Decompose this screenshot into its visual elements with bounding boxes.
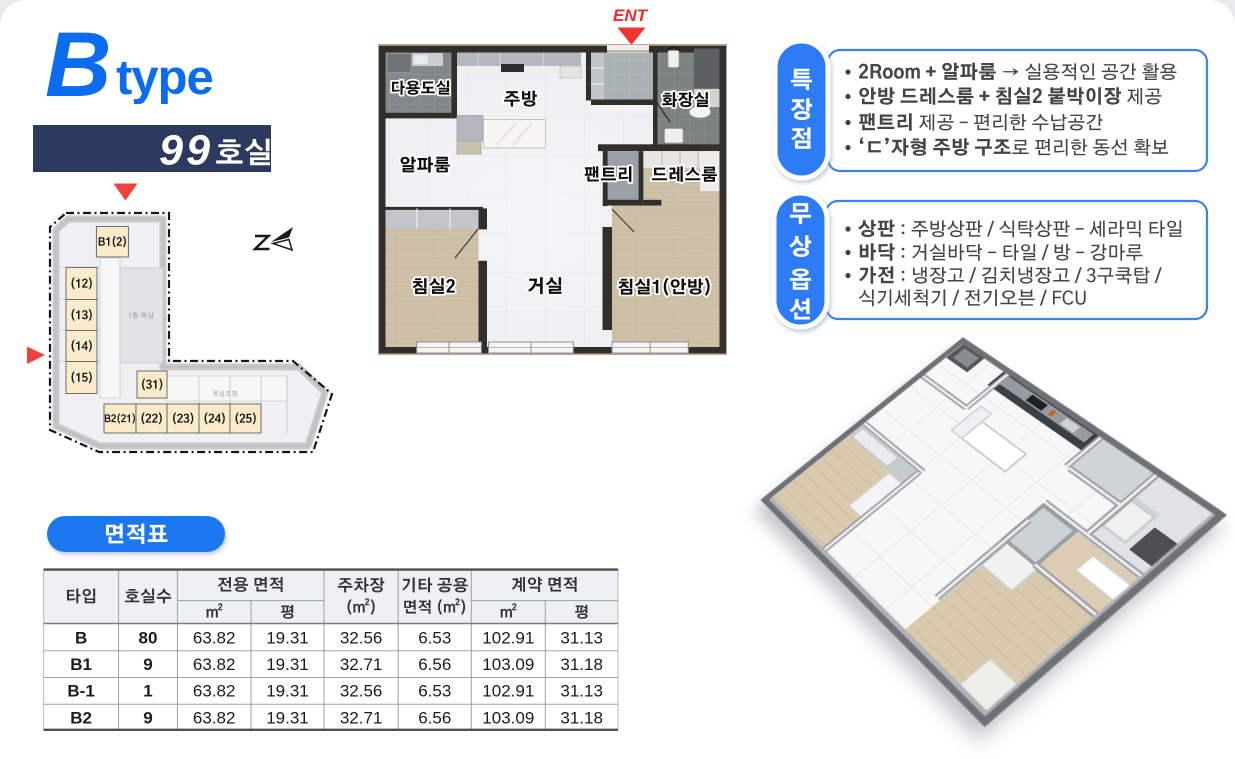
svg-text:32.56: 32.56 (340, 682, 383, 701)
svg-text:31.18: 31.18 (560, 708, 603, 727)
svg-text:32.56: 32.56 (340, 628, 383, 647)
svg-text:type: type (116, 51, 213, 105)
svg-text:19.31: 19.31 (266, 708, 309, 727)
svg-text:31.13: 31.13 (560, 682, 603, 701)
svg-text:102.91: 102.91 (482, 628, 534, 647)
svg-text:31.13: 31.13 (560, 628, 603, 647)
svg-text:102.91: 102.91 (482, 682, 534, 701)
svg-text:6.53: 6.53 (418, 682, 451, 701)
svg-text:19.31: 19.31 (266, 682, 309, 701)
svg-text:1: 1 (143, 682, 152, 701)
svg-text:31.18: 31.18 (560, 655, 603, 674)
svg-text:B: B (75, 628, 87, 647)
svg-text:6.56: 6.56 (418, 708, 451, 727)
svg-text:32.71: 32.71 (340, 655, 383, 674)
svg-text:103.09: 103.09 (482, 655, 534, 674)
svg-text:19.31: 19.31 (266, 655, 309, 674)
svg-text:9: 9 (143, 708, 152, 727)
svg-text:63.82: 63.82 (193, 628, 236, 647)
svg-text:32.71: 32.71 (340, 708, 383, 727)
svg-text:9: 9 (143, 655, 152, 674)
svg-text:99: 99 (159, 127, 213, 175)
svg-text:B: B (45, 14, 111, 116)
svg-text:B2: B2 (70, 708, 92, 727)
svg-text:6.56: 6.56 (418, 655, 451, 674)
svg-text:ENT: ENT (613, 6, 649, 25)
svg-text:19.31: 19.31 (266, 628, 309, 647)
svg-text:103.09: 103.09 (482, 708, 534, 727)
svg-text:63.82: 63.82 (193, 682, 236, 701)
svg-text:63.82: 63.82 (193, 655, 236, 674)
svg-text:6.53: 6.53 (418, 628, 451, 647)
svg-text:B1: B1 (70, 655, 92, 674)
svg-text:B-1: B-1 (67, 682, 94, 701)
svg-text:80: 80 (139, 628, 158, 647)
svg-text:63.82: 63.82 (193, 708, 236, 727)
